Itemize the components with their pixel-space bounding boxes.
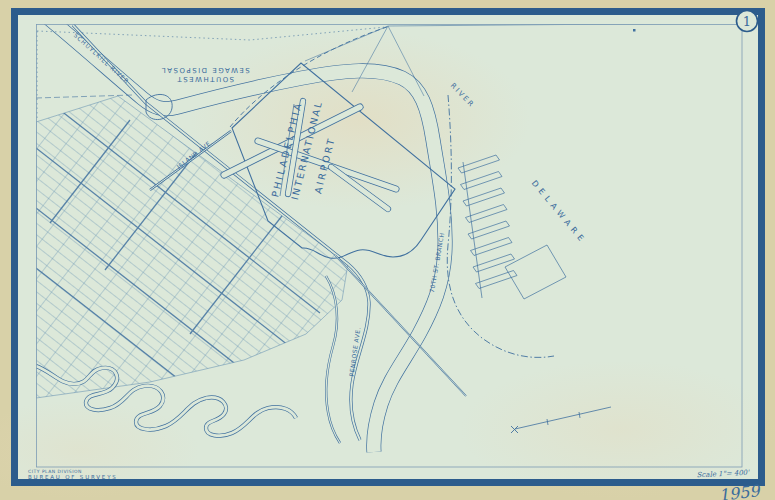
map-sheet: PHILADELPHIA INTERNATIONAL AIRPORT DELAW… <box>0 0 775 500</box>
credit-line2: BUREAU OF SURVEYS <box>28 474 118 480</box>
blueprint-map-svg: PHILADELPHIA INTERNATIONAL AIRPORT DELAW… <box>0 0 775 500</box>
sewage-label-line2: SEWAGE DISPOSAL <box>160 66 250 74</box>
survey-dot <box>633 29 636 32</box>
plate-number-badge: 1 <box>737 11 758 32</box>
sewage-label-line1: SOUTHWEST <box>176 75 234 83</box>
plate-number: 1 <box>743 14 751 29</box>
